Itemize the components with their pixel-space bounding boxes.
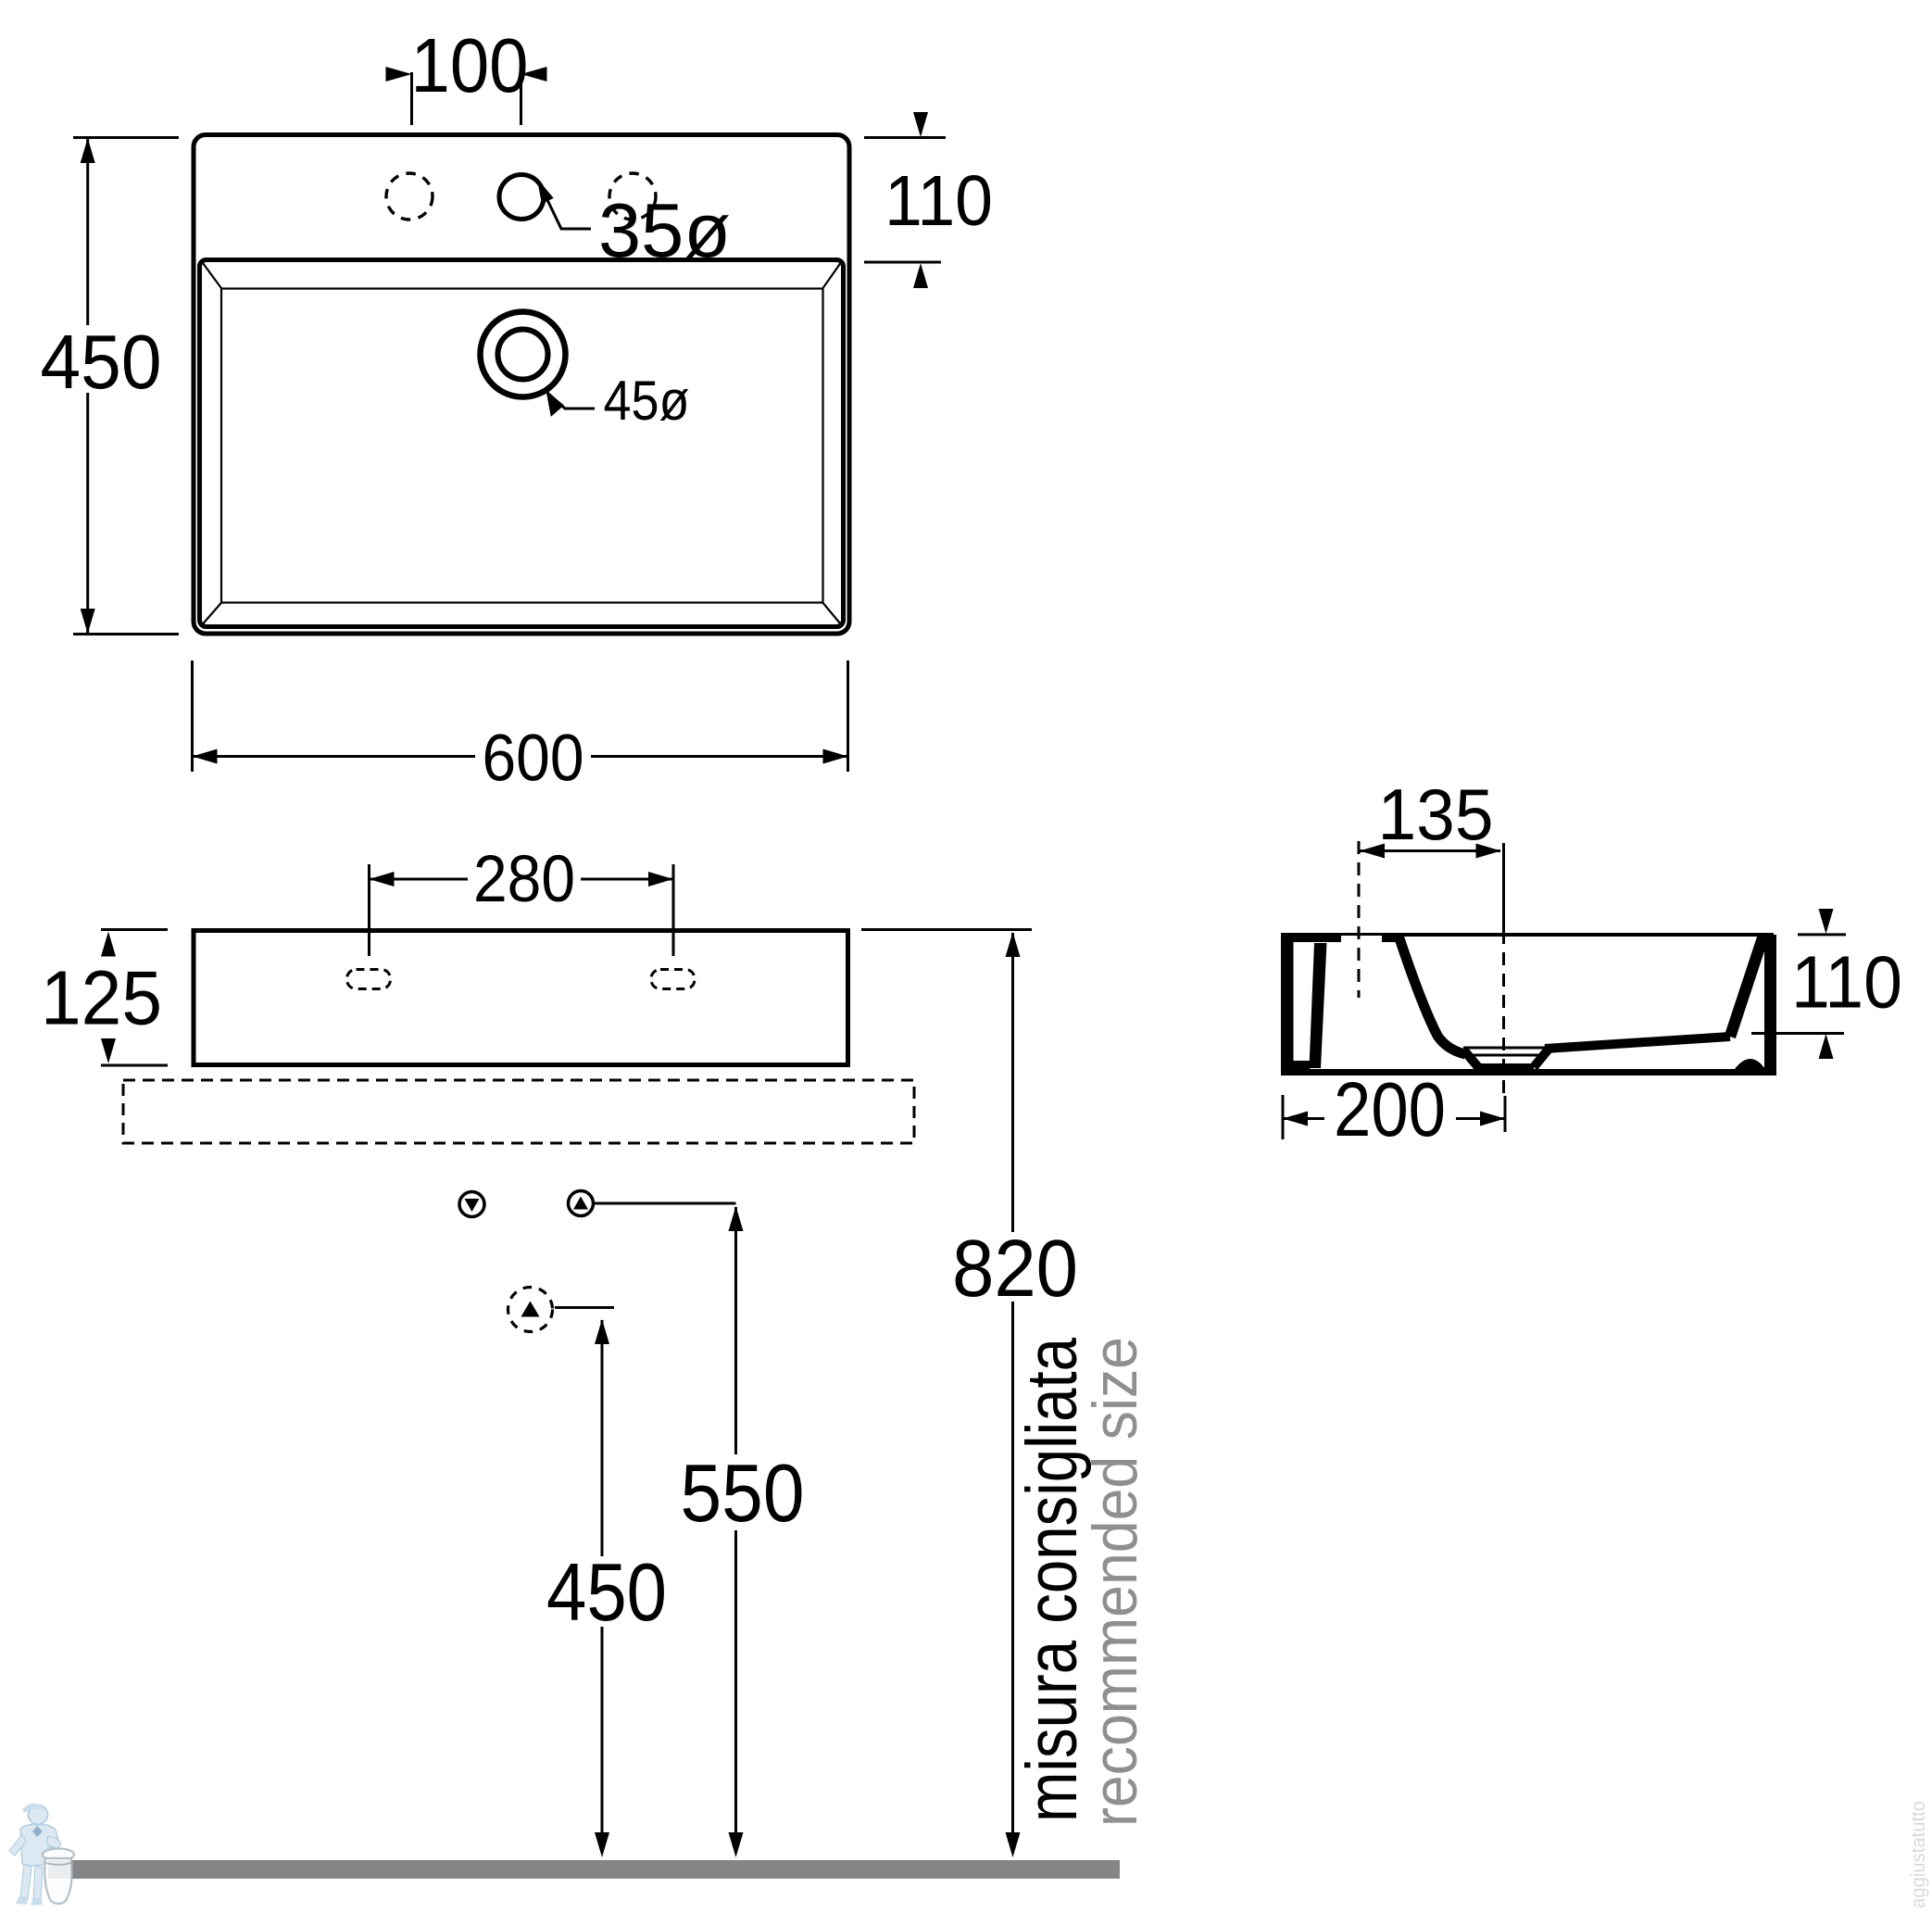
svg-text:125: 125 — [41, 955, 162, 1041]
svg-text:600: 600 — [483, 723, 584, 796]
svg-text:45ø: 45ø — [604, 370, 690, 432]
svg-text:135: 135 — [1378, 774, 1494, 855]
svg-text:450: 450 — [41, 319, 162, 405]
svg-text:recommended size: recommended size — [1080, 1337, 1150, 1827]
svg-text:280: 280 — [473, 843, 575, 916]
svg-text:100: 100 — [411, 22, 529, 108]
svg-text:200: 200 — [1334, 1066, 1446, 1152]
svg-text:aggiustatutto: aggiustatutto — [1908, 1801, 1929, 1908]
svg-text:550: 550 — [681, 1447, 805, 1539]
svg-text:450: 450 — [546, 1546, 667, 1638]
svg-text:820: 820 — [952, 1224, 1078, 1314]
svg-text:35ø: 35ø — [598, 187, 731, 273]
svg-text:110: 110 — [1791, 941, 1902, 1024]
svg-text:110: 110 — [884, 161, 993, 241]
